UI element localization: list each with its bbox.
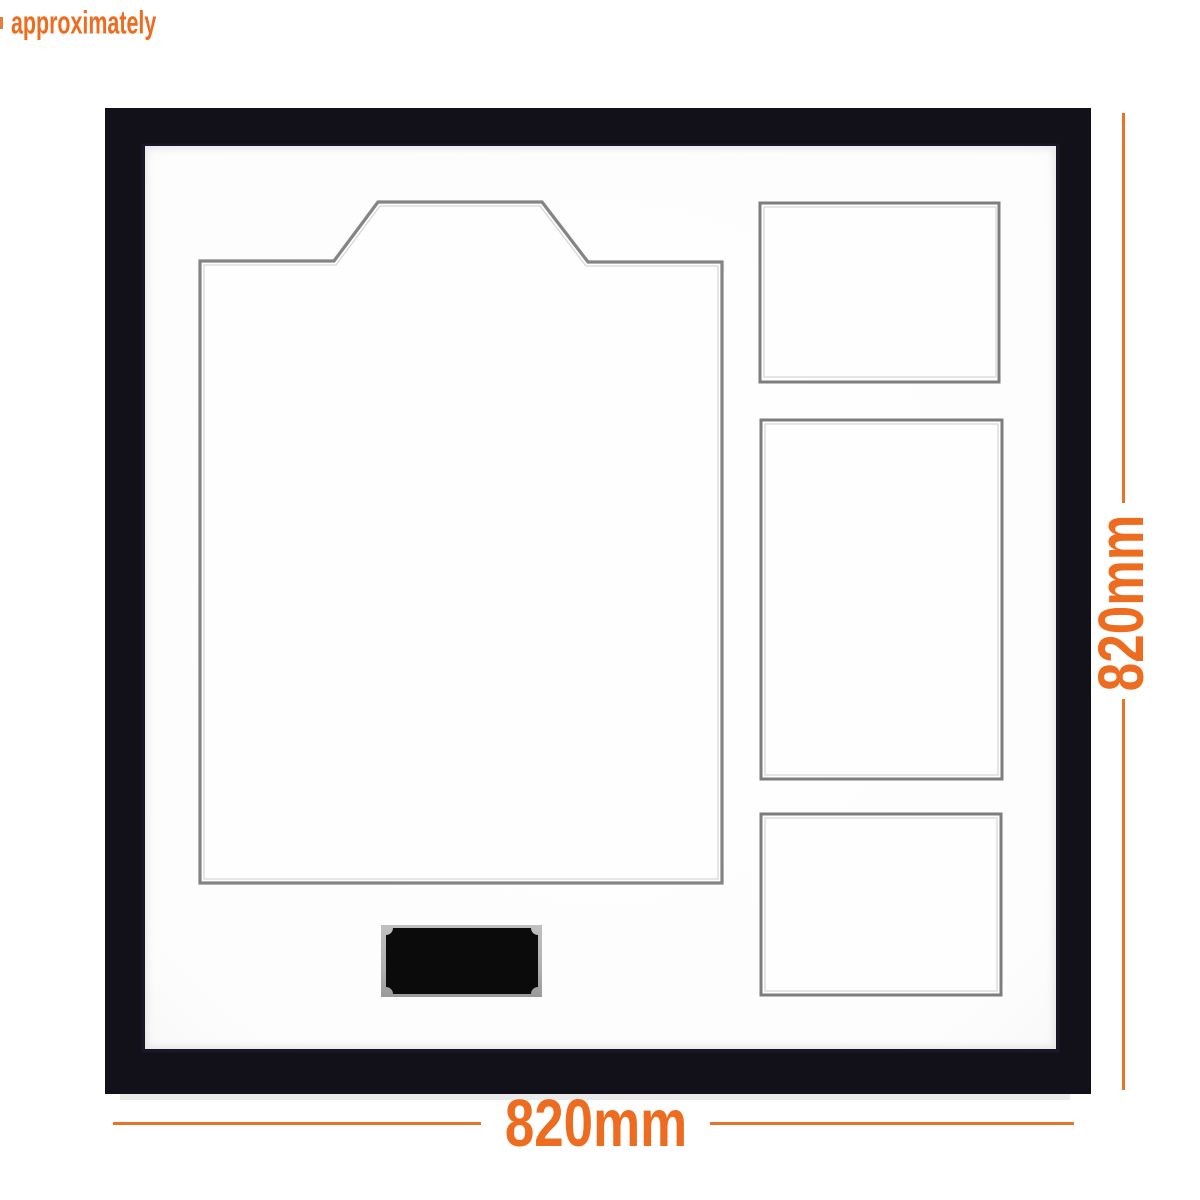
svg-text:approximately: approximately <box>11 4 156 40</box>
svg-text:820mm: 820mm <box>1087 515 1158 691</box>
svg-text:820mm: 820mm <box>505 1085 687 1160</box>
